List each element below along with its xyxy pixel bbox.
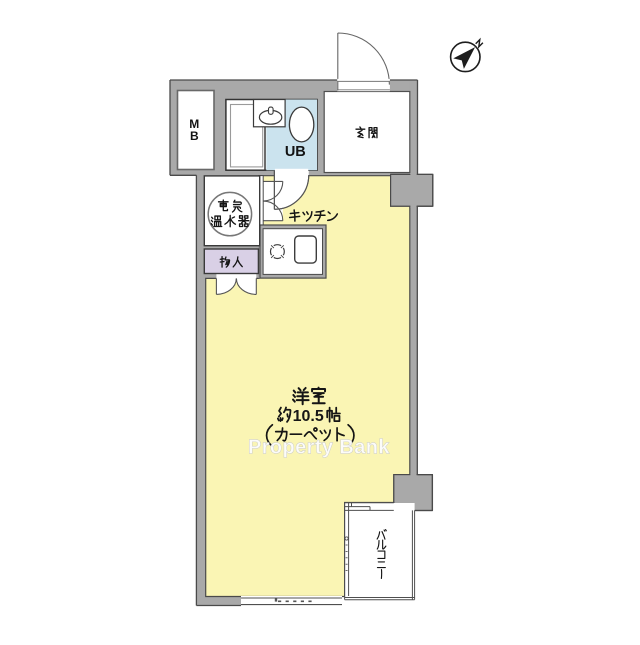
svg-text:B: B [190,129,199,143]
svg-text:Property Bank: Property Bank [248,437,390,459]
svg-text:10.5: 10.5 [293,408,324,425]
svg-text:UB: UB [285,144,306,160]
